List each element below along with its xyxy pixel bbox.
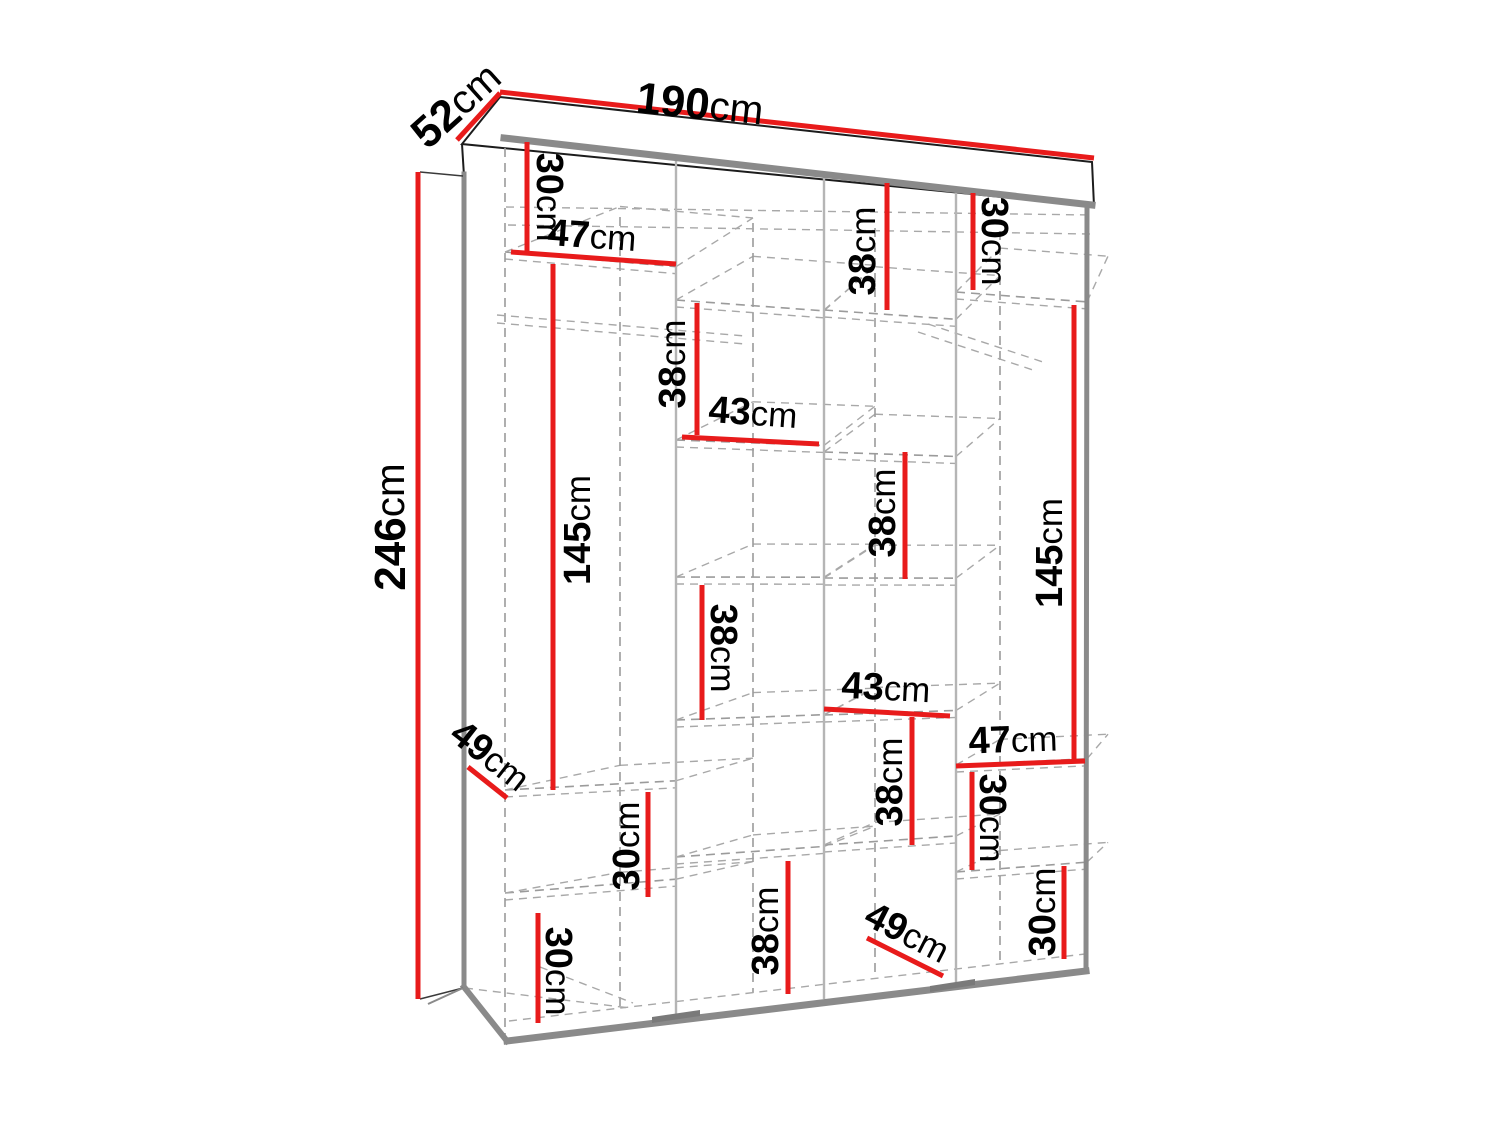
dimension-label-right-cell-height-upper: 30cm [971,774,1013,863]
dimension-label-top-right-cell-height: 30cm [973,197,1015,286]
door-gap-lines [676,158,956,1017]
dimension-line-mid-shelf-width-upper [682,437,819,444]
extension-line-top [420,172,463,176]
dimension-label-top-mid-cell-height: 38cm [842,207,884,296]
hanging-rod-line [497,315,745,336]
dimension-label-right-shelf-width: 47cm [968,717,1058,762]
side-bottom-edge [464,987,507,1041]
bottom-edge [507,971,1086,1041]
dimension-label-mid-upper-cell-height: 38cm [652,320,694,409]
dimension-label-left-col-cell-height-lower: 30cm [537,927,579,1016]
top-panel-left-edge [462,144,464,176]
dimension-label-mid-shelf-width-lower: 43cm [841,665,932,712]
dimension-label-right-hanging-height: 145cm [1029,498,1071,608]
hanging-rod-line [918,332,1033,370]
dimension-label-third-col-cell-height: 38cm [862,469,904,558]
hanging-rod-line [928,324,1043,362]
dimension-label-left-hanging-height: 145cm [557,475,599,585]
dimension-label-height-total: 246cm [366,463,415,590]
wardrobe-dimension-diagram: 52cm190cm246cm30cm47cm38cm30cm145cm38cm4… [0,0,1500,1125]
diagram-canvas: 52cm190cm246cm30cm47cm38cm30cm145cm38cm4… [0,0,1500,1125]
dimension-label-mid-lower-cell-height: 38cm [702,604,744,693]
dimension-label-third-col-lower-cell-height: 38cm [869,738,911,827]
dimension-label-left-shelf-width: 47cm [546,212,638,260]
dimension-label-right-bottom-cell-height: 30cm [1022,868,1064,957]
dimension-label-mid-bottom-cell-height: 38cm [745,887,787,976]
dimension-label-left-col-cell-height-upper: 30cm [606,802,648,891]
right-edge [1086,206,1087,971]
dimension-label-mid-shelf-width-upper: 43cm [707,389,799,437]
